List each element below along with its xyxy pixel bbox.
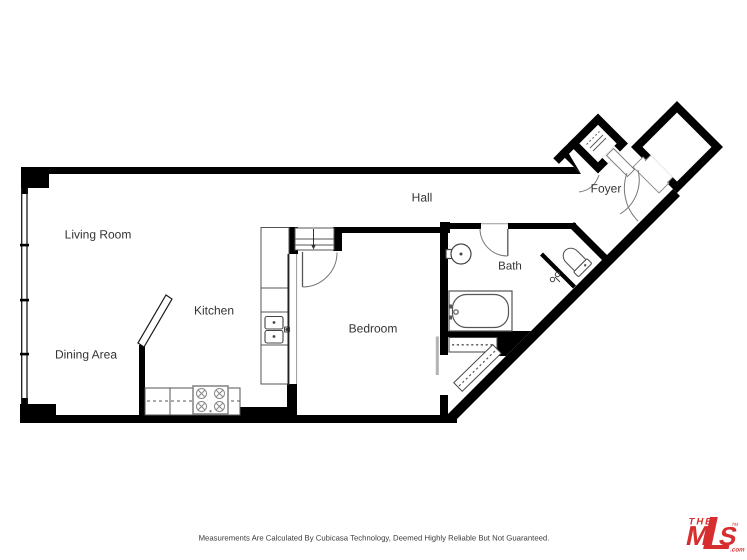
svg-text:Bath: Bath	[498, 261, 522, 273]
svg-text:Kitchen: Kitchen	[194, 304, 234, 318]
svg-text:Living Room: Living Room	[65, 228, 132, 242]
svg-text:Foyer: Foyer	[591, 182, 622, 196]
svg-text:TM: TM	[731, 522, 739, 527]
svg-text:.com: .com	[729, 546, 745, 553]
svg-text:Dining Area: Dining Area	[55, 348, 117, 362]
svg-text:Hall: Hall	[412, 191, 433, 205]
svg-text:Bedroom: Bedroom	[349, 322, 398, 336]
svg-text:Measurements Are Calculated By: Measurements Are Calculated By Cubicasa …	[199, 534, 550, 543]
